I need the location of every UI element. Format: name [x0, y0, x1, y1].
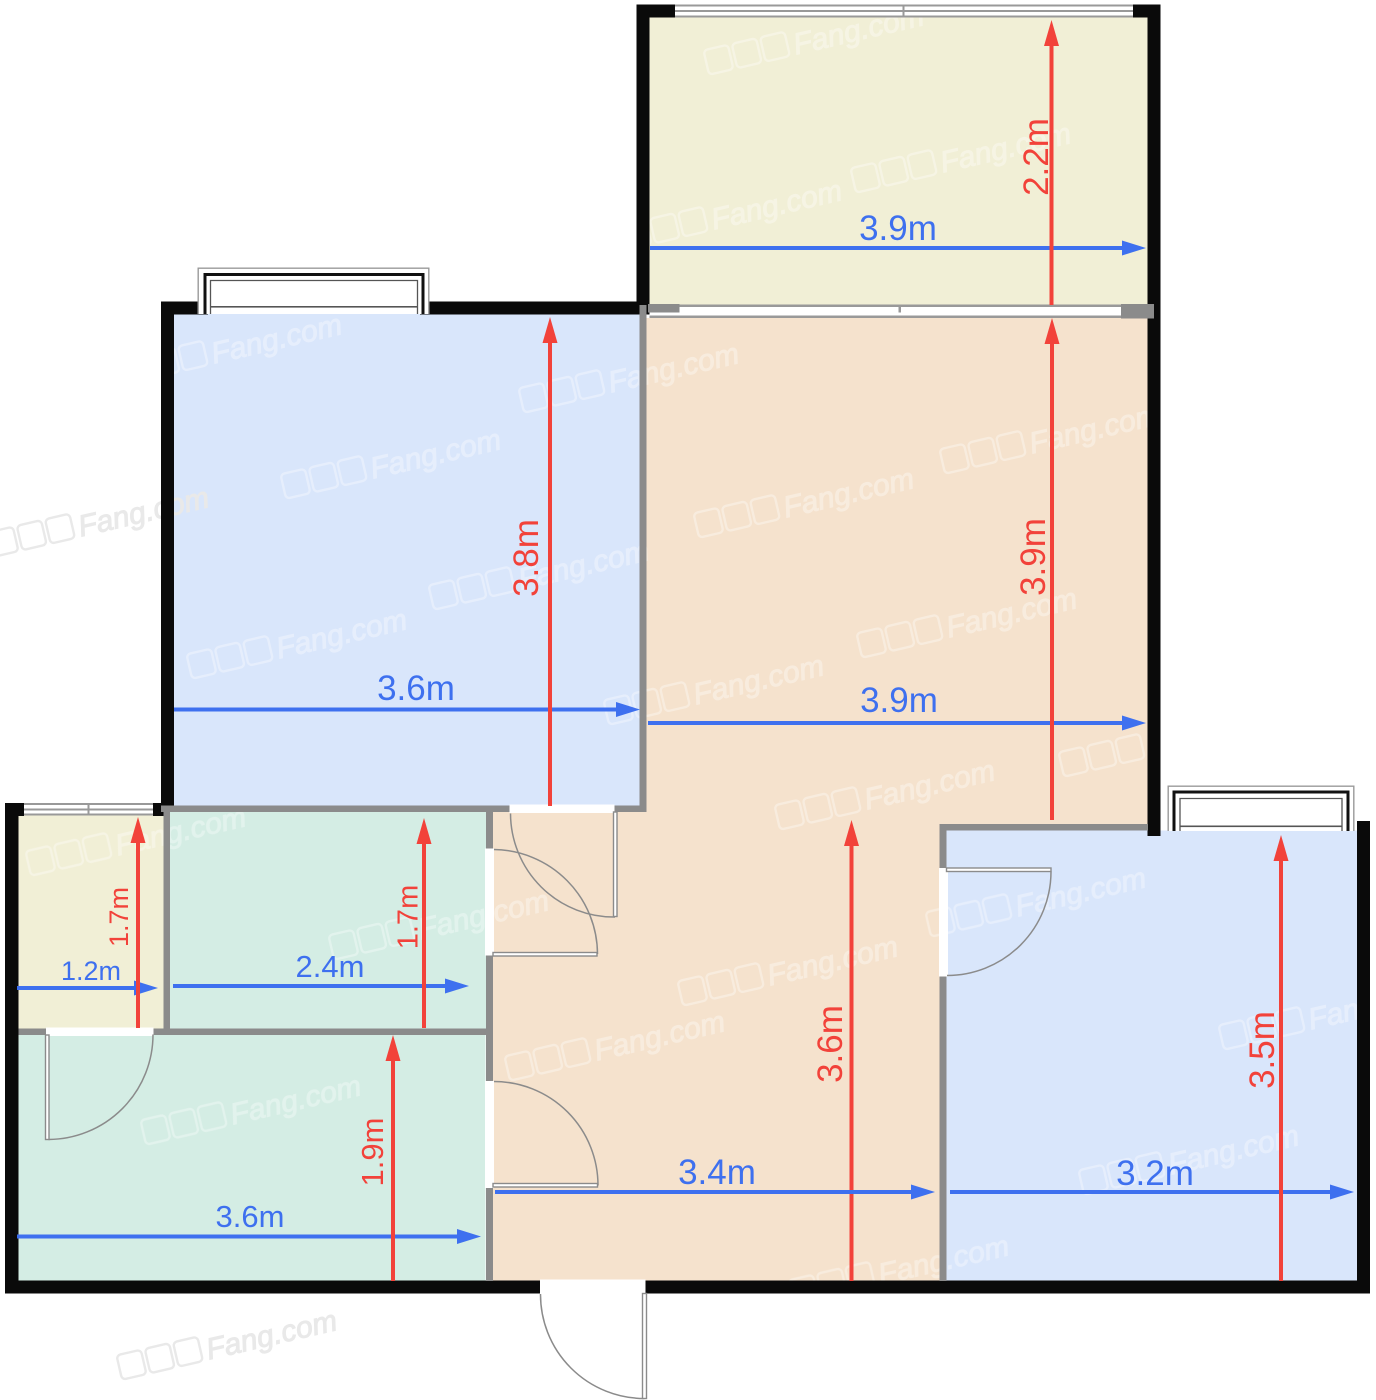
svg-text:1.2m: 1.2m	[61, 956, 121, 986]
svg-text:3.4m: 3.4m	[678, 1153, 756, 1192]
svg-text:3.9m: 3.9m	[1014, 518, 1053, 596]
svg-text:1.7m: 1.7m	[393, 885, 425, 949]
svg-text:1.9m: 1.9m	[355, 1118, 390, 1187]
svg-text:2.4m: 2.4m	[296, 949, 365, 984]
svg-text:3.6m: 3.6m	[216, 1199, 285, 1234]
svg-text:1.7m: 1.7m	[104, 887, 134, 947]
svg-text:3.2m: 3.2m	[1116, 1154, 1194, 1193]
svg-text:3.5m: 3.5m	[1243, 1011, 1282, 1089]
svg-text:3.8m: 3.8m	[507, 519, 546, 597]
svg-text:3.6m: 3.6m	[811, 1005, 850, 1083]
svg-text:2.2m: 2.2m	[1017, 118, 1056, 196]
svg-text:3.9m: 3.9m	[859, 209, 937, 248]
svg-text:3.9m: 3.9m	[860, 681, 938, 720]
svg-text:3.6m: 3.6m	[377, 669, 455, 708]
